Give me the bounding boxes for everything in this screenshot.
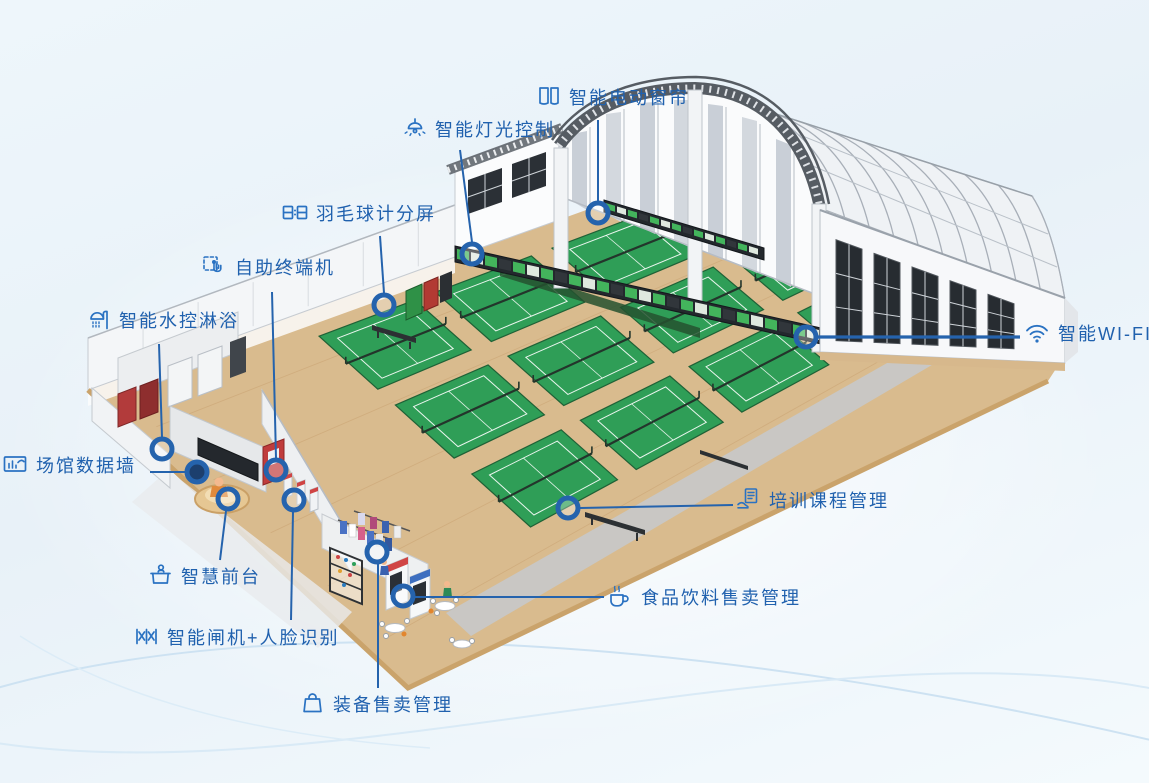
locker-red bbox=[140, 379, 158, 419]
venue-illustration bbox=[0, 0, 1149, 783]
marker-training[interactable] bbox=[558, 498, 578, 518]
callout-smart-front-desk: 智慧前台 bbox=[147, 562, 261, 589]
callout-smart-wifi: 智能WI-FI bbox=[1023, 320, 1149, 346]
gate-icon bbox=[133, 624, 160, 650]
desk-icon bbox=[147, 562, 174, 589]
bag-icon bbox=[299, 690, 326, 717]
marker-scoreboard[interactable] bbox=[374, 295, 394, 315]
customer bbox=[443, 588, 452, 597]
marker-datawall[interactable] bbox=[187, 462, 207, 482]
marker-food[interactable] bbox=[393, 586, 413, 606]
marker-kiosk[interactable] bbox=[266, 460, 286, 480]
callout-label: 智能闸机+人脸识别 bbox=[167, 624, 340, 650]
callout-label: 装备售卖管理 bbox=[333, 691, 453, 717]
locker-red bbox=[118, 387, 136, 427]
marker-curtain[interactable] bbox=[588, 203, 608, 223]
customer-head bbox=[444, 581, 450, 587]
course-icon bbox=[735, 486, 762, 513]
marker-frontdesk[interactable] bbox=[218, 489, 238, 509]
callout-smart-curtain: 智能电动窗帘 bbox=[536, 84, 689, 110]
datawall-icon bbox=[2, 452, 29, 478]
callout-label: 场馆数据墙 bbox=[36, 452, 136, 478]
callout-smart-gate-face-id: 智能闸机+人脸识别 bbox=[133, 624, 340, 650]
marker-gate[interactable] bbox=[284, 490, 304, 510]
callout-label: 培训课程管理 bbox=[769, 487, 889, 513]
callout-label: 智能灯光控制 bbox=[435, 116, 555, 142]
cup-icon bbox=[606, 583, 634, 611]
shower-stall bbox=[198, 346, 222, 396]
callout-label: 智能WI-FI bbox=[1058, 320, 1149, 346]
callout-smart-shower: 智能水控淋浴 bbox=[86, 306, 239, 333]
lamp-icon bbox=[402, 116, 428, 142]
callout-smart-lighting: 智能灯光控制 bbox=[402, 116, 555, 142]
callout-label: 智能电动窗帘 bbox=[569, 84, 689, 110]
shower-stall bbox=[168, 357, 192, 407]
curtain-icon bbox=[536, 84, 562, 110]
callout-label: 智慧前台 bbox=[181, 563, 261, 589]
marker-wifi[interactable] bbox=[796, 327, 816, 347]
callout-label: 智能水控淋浴 bbox=[119, 307, 239, 333]
callout-training-courses: 培训课程管理 bbox=[735, 486, 889, 513]
smart-venue-diagram: 智能电动窗帘 智能灯光控制 羽毛球计分屏 自助终端机 智能水控淋浴 bbox=[0, 0, 1149, 783]
wifi-icon bbox=[1023, 320, 1051, 346]
callout-food-beverage-sales: 食品饮料售卖管理 bbox=[606, 583, 801, 611]
touch-icon bbox=[201, 253, 228, 280]
scoreboard-icon bbox=[281, 200, 309, 226]
callout-label: 羽毛球计分屏 bbox=[316, 200, 436, 226]
customer bbox=[380, 566, 389, 575]
marker-shower[interactable] bbox=[152, 439, 172, 459]
callout-label: 食品饮料售卖管理 bbox=[641, 584, 801, 610]
gable-column bbox=[688, 90, 702, 306]
callout-self-service-kiosk: 自助终端机 bbox=[201, 253, 335, 280]
shower-icon bbox=[86, 306, 112, 333]
callout-label: 自助终端机 bbox=[235, 254, 335, 280]
gable-column bbox=[554, 148, 568, 288]
receptionist-head bbox=[215, 478, 224, 487]
marker-lighting[interactable] bbox=[462, 244, 482, 264]
callout-equipment-sales: 装备售卖管理 bbox=[299, 690, 453, 717]
callout-data-wall: 场馆数据墙 bbox=[2, 452, 136, 478]
callout-scoreboard: 羽毛球计分屏 bbox=[281, 200, 436, 226]
marker-equipment[interactable] bbox=[367, 542, 387, 562]
doorway bbox=[230, 336, 246, 378]
